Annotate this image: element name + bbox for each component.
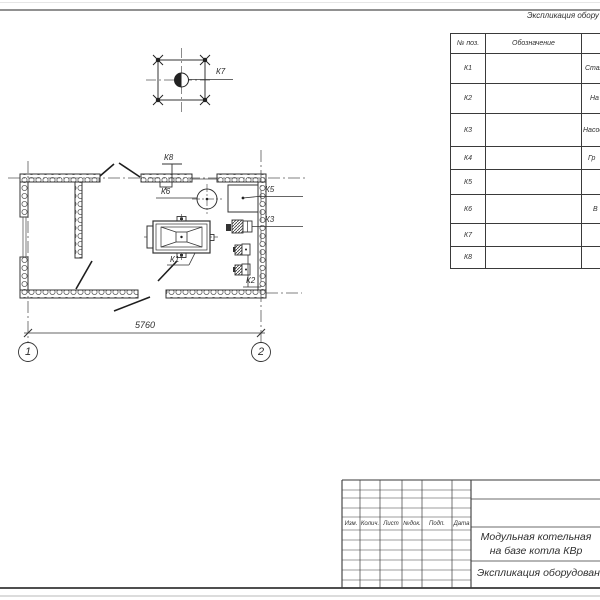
table-row: К7 [451,224,600,247]
label-k2: К2 [246,277,255,285]
table-row: К5 [451,170,600,195]
row-name: Гр [582,147,600,169]
row-designation [486,84,582,113]
table-row: К2 На [451,84,600,114]
row-designation [486,170,582,194]
dimension-value: 5760 [110,321,180,330]
row-pos: К7 [451,224,486,246]
tb-header-kolich: Колич. [360,518,380,530]
label-k6: К6 [161,188,170,196]
table-row: К1 Стал [451,54,600,84]
chimney-k7 [146,48,233,112]
row-name: В [582,195,600,223]
row-pos: К3 [451,114,486,146]
row-designation [486,54,582,83]
equipment-table-header: № поз. Обозначение [451,34,600,54]
row-pos: К1 [451,54,486,83]
dimension-line [24,329,265,337]
axis-number-2: 2 [252,346,270,359]
tb-header-podp: Подп. [422,518,452,530]
tb-header-izm: Изм. [342,518,360,530]
partition-wall [75,182,82,258]
row-designation [486,247,582,268]
tb-header-data: Дата [452,518,471,530]
label-k1: К1 [170,256,179,264]
label-k7: К7 [216,68,225,76]
tb-header-list: Лист [380,518,402,530]
drawing-sheet: Экспликация обору № поз. Обозначение К1 … [0,0,600,600]
table-row: К4 Гр [451,147,600,170]
equipment-table: № поз. Обозначение К1 Стал К2 На К3 Насо… [450,33,600,269]
row-designation [486,114,582,146]
axis-number-1: 1 [19,346,37,359]
object-name-line2: на базе котла КВр [473,545,599,557]
row-pos: К5 [451,170,486,194]
col-designation-header: Обозначение [486,34,582,53]
row-pos: К6 [451,195,486,223]
row-name: Стал [582,54,600,83]
col-pos-header: № поз. [451,34,486,53]
label-k3: К3 [265,216,274,224]
row-designation [486,224,582,246]
row-name [582,247,600,268]
table-row: К8 [451,247,600,269]
object-name-line1: Модульная котельная [473,531,599,543]
row-name [582,170,600,194]
equipment-table-title: Экспликация обору [527,11,599,21]
row-pos: К4 [451,147,486,169]
sheet-name: Экспликация оборудован [477,567,600,579]
row-pos: К2 [451,84,486,113]
row-name [582,224,600,246]
row-pos: К8 [451,247,486,268]
table-row: К6 В [451,195,600,224]
boiler-k1 [144,214,218,265]
table-row: К3 Насос [451,114,600,147]
label-k5: К5 [265,186,274,194]
row-designation [486,195,582,223]
row-designation [486,147,582,169]
row-name: На [582,84,600,113]
tb-header-ndok: №док. [402,518,422,530]
row-name: Насос [582,114,600,146]
axis-bubbles [19,343,271,362]
col-name-header [582,34,600,53]
label-k8: К8 [164,154,173,162]
